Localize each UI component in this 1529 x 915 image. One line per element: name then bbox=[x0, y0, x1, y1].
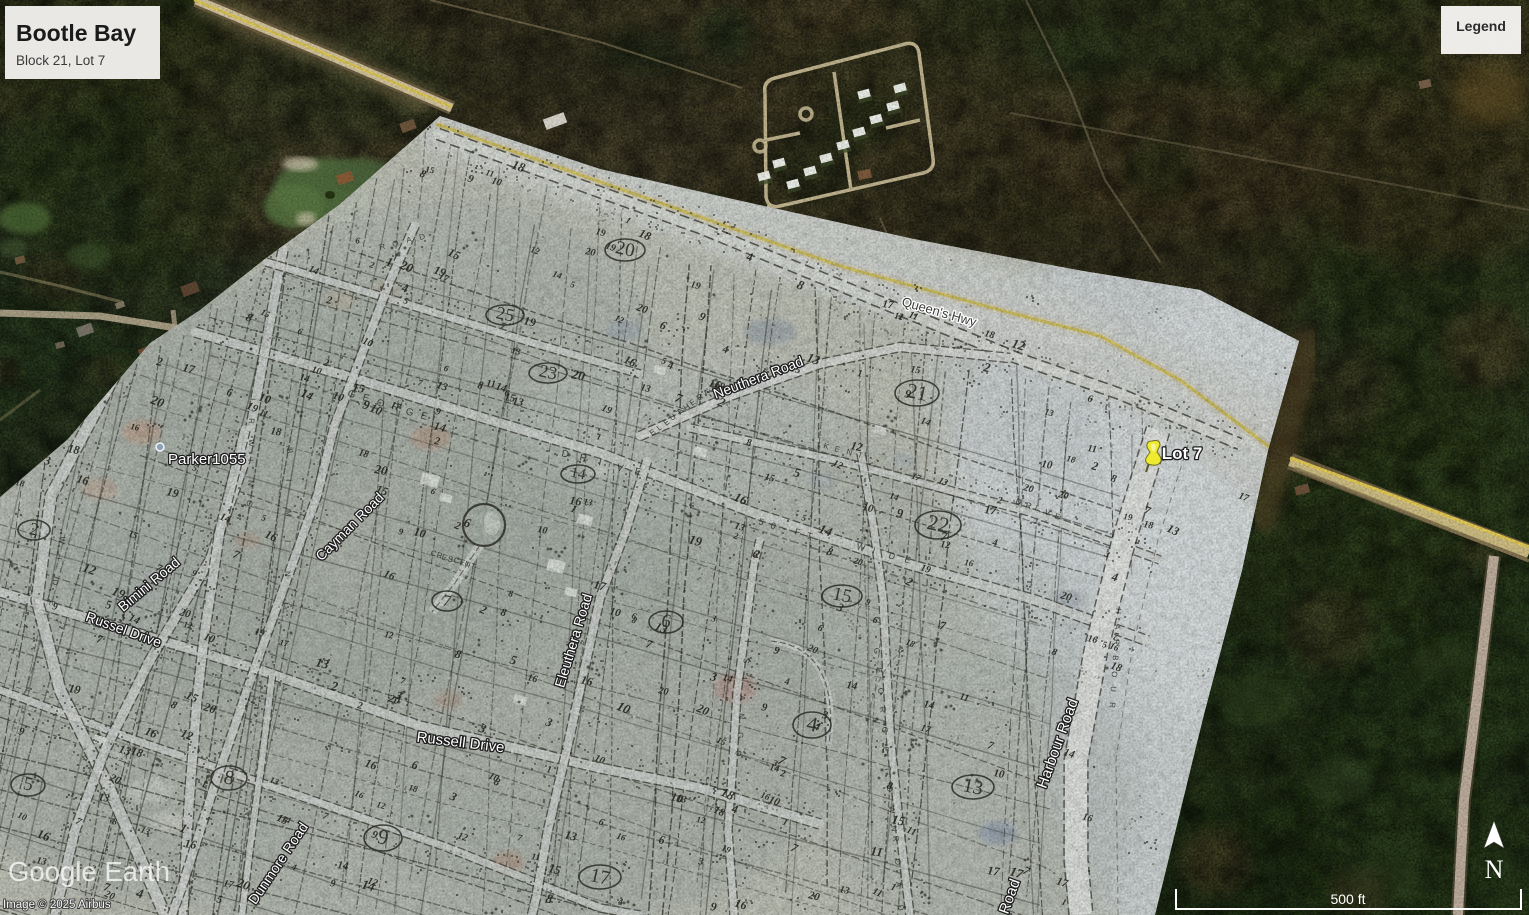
svg-text:Legend: Legend bbox=[1456, 18, 1506, 34]
svg-text:Google Earth: Google Earth bbox=[8, 856, 170, 887]
svg-text:Parker1055: Parker1055 bbox=[168, 451, 246, 468]
svg-text:Lot 7: Lot 7 bbox=[1162, 444, 1203, 463]
svg-text:N: N bbox=[1485, 855, 1504, 884]
svg-text:500 ft: 500 ft bbox=[1330, 891, 1365, 907]
svg-text:Bootle Bay: Bootle Bay bbox=[16, 20, 136, 46]
svg-text:Block 21, Lot 7: Block 21, Lot 7 bbox=[16, 53, 105, 68]
svg-text:Image © 2025 Airbus: Image © 2025 Airbus bbox=[3, 899, 111, 911]
